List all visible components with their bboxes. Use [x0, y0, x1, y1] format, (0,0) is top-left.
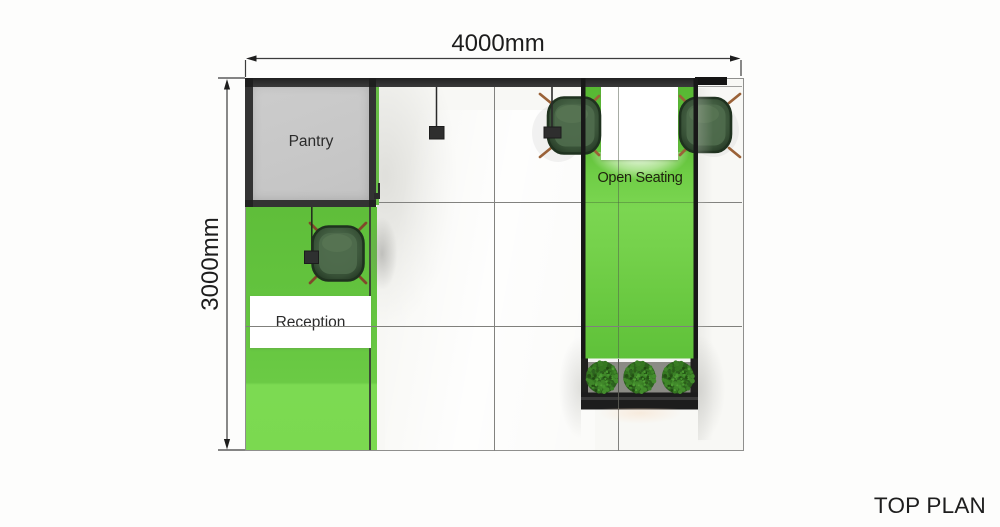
svg-text:3000mm: 3000mm: [197, 217, 224, 310]
svg-text:4000mm: 4000mm: [451, 30, 544, 57]
